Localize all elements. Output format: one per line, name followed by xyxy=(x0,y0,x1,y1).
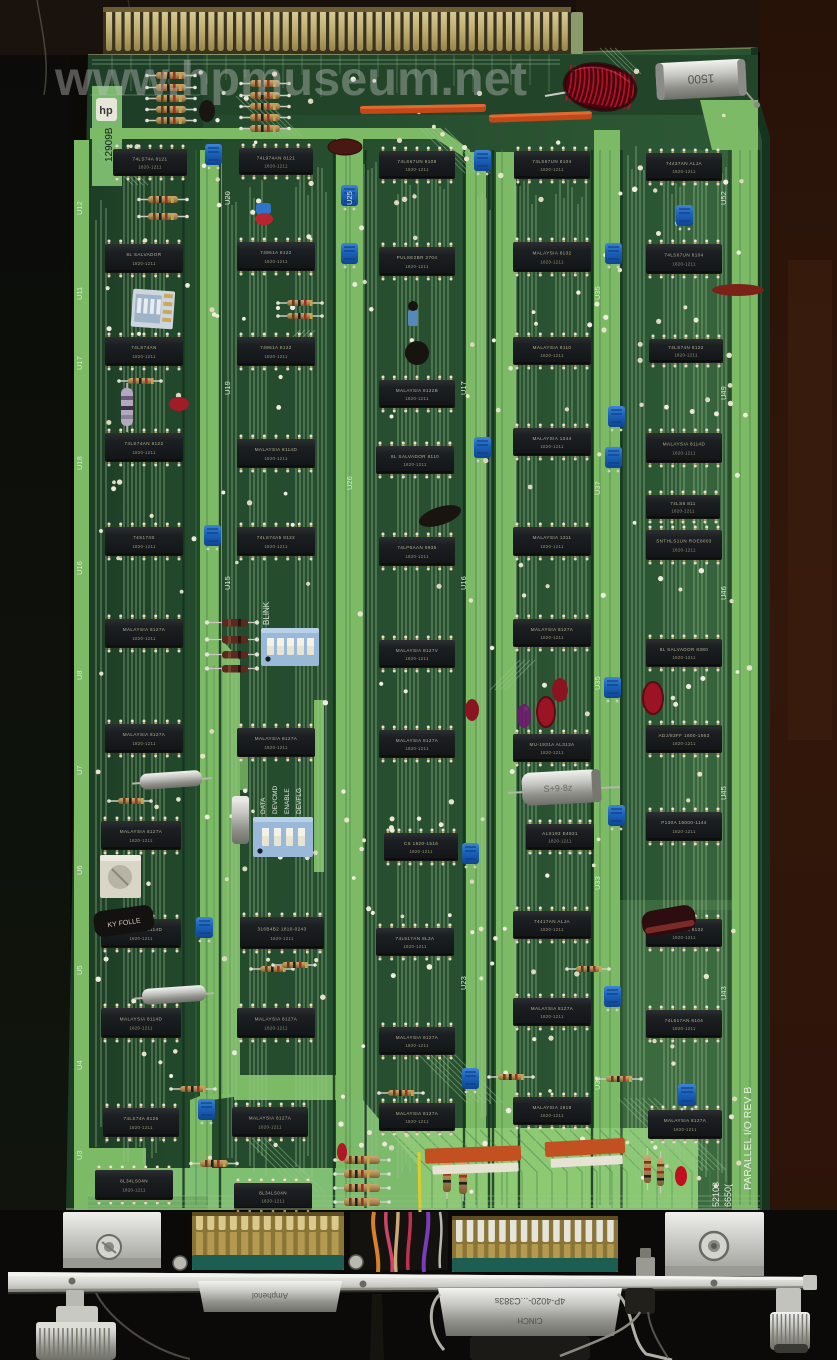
svg-text:MALAYSIA 8127A: MALAYSIA 8127A xyxy=(123,732,166,737)
svg-text:74LS74N 8122: 74LS74N 8122 xyxy=(668,345,703,350)
svg-text:1820-1211: 1820-1211 xyxy=(132,741,156,746)
svg-text:1820-1211: 1820-1211 xyxy=(672,935,696,940)
svg-text:1820-1211: 1820-1211 xyxy=(264,544,288,549)
svg-text:1820-1211: 1820-1211 xyxy=(264,1026,288,1031)
svg-text:U17: U17 xyxy=(75,356,84,370)
svg-text:74LS6 811: 74LS6 811 xyxy=(670,501,696,506)
svg-text:1820-1211: 1820-1211 xyxy=(540,167,564,172)
svg-text:U20: U20 xyxy=(223,191,232,205)
svg-text:1820-1211: 1820-1211 xyxy=(270,936,294,941)
svg-text:U5: U5 xyxy=(75,965,84,975)
svg-text:1820-1211: 1820-1211 xyxy=(672,262,696,267)
svg-text:MALAYSIA 8127V: MALAYSIA 8127V xyxy=(396,648,439,653)
svg-text:1820-1211: 1820-1211 xyxy=(672,655,696,660)
svg-text:1820-1211: 1820-1211 xyxy=(540,353,564,358)
svg-text:1820-1211: 1820-1211 xyxy=(258,1125,282,1130)
svg-text:MALAYSIA 8127A: MALAYSIA 8127A xyxy=(531,627,574,632)
svg-text:1820-1211: 1820-1211 xyxy=(672,1026,696,1031)
svg-text:MALAYSIA 8127A: MALAYSIA 8127A xyxy=(120,829,163,834)
svg-text:1820-1211: 1820-1211 xyxy=(261,1198,285,1203)
svg-text:ADJ/83FF 1800-1863: ADJ/83FF 1800-1863 xyxy=(658,733,709,738)
svg-text:1820-1211: 1820-1211 xyxy=(405,1119,429,1124)
svg-text:1820-1211: 1820-1211 xyxy=(409,849,433,854)
svg-text:74L974AN 8121: 74L974AN 8121 xyxy=(257,155,295,160)
svg-text:CS 1820-1516: CS 1820-1516 xyxy=(404,841,438,846)
svg-text:74LP6AAN 8935: 74LP6AAN 8935 xyxy=(397,545,436,550)
svg-text:8L SALVADOR 8380: 8L SALVADOR 8380 xyxy=(660,647,708,652)
svg-text:1820-1211: 1820-1211 xyxy=(405,264,429,269)
svg-text:1820-1211: 1820-1211 xyxy=(405,554,429,559)
svg-text:MALAYSIA 8127A: MALAYSIA 8127A xyxy=(249,1116,292,1121)
svg-text:SNTHLS1UN ROE8003: SNTHLS1UN ROE8003 xyxy=(656,539,712,544)
svg-text:MALAYSIA 8110: MALAYSIA 8110 xyxy=(533,345,572,350)
svg-text:MALAYSIA 8127A: MALAYSIA 8127A xyxy=(531,1006,574,1011)
svg-text:PARALLEL I/O REV B: PARALLEL I/O REV B xyxy=(742,1087,754,1190)
svg-text:8L SALVADOR: 8L SALVADOR xyxy=(127,252,162,257)
svg-text:MALAYSIA 8122B: MALAYSIA 8122B xyxy=(396,388,439,393)
svg-text:MALAYSIA 8127A: MALAYSIA 8127A xyxy=(396,738,439,743)
svg-text:MALAYSIA 8114D: MALAYSIA 8114D xyxy=(255,447,298,452)
svg-text:74LS74A 8121: 74LS74A 8121 xyxy=(133,156,168,161)
svg-text:MALAYSIA 8114D: MALAYSIA 8114D xyxy=(120,1017,163,1022)
svg-text:1820-1211: 1820-1211 xyxy=(672,548,696,553)
svg-text:1820-1211: 1820-1211 xyxy=(548,839,572,844)
svg-text:U37: U37 xyxy=(593,481,602,495)
svg-text:U15: U15 xyxy=(223,576,232,590)
svg-text:1820-1211: 1820-1211 xyxy=(403,944,427,949)
svg-text:316B4B2 1810-0243: 316B4B2 1810-0243 xyxy=(258,926,307,931)
svg-text:1820-1211: 1820-1211 xyxy=(132,544,156,549)
svg-text:1820-1211: 1820-1211 xyxy=(405,167,429,172)
svg-text:MALAYSIA 8127A: MALAYSIA 8127A xyxy=(255,1017,298,1022)
svg-text:U35: U35 xyxy=(593,676,602,690)
svg-text:DEVCMD: DEVCMD xyxy=(272,786,279,814)
svg-text:1820-1211: 1820-1211 xyxy=(540,927,564,932)
svg-text:U11: U11 xyxy=(75,287,84,300)
svg-text:U23: U23 xyxy=(459,976,468,990)
svg-text:1820-1211: 1820-1211 xyxy=(671,508,695,513)
svg-text:74L517AN 8L3A: 74L517AN 8L3A xyxy=(396,936,435,941)
svg-text:U25: U25 xyxy=(345,191,354,205)
svg-text:1820-1211: 1820-1211 xyxy=(264,354,288,359)
svg-text:74LS74AN 8122: 74LS74AN 8122 xyxy=(125,441,164,446)
svg-text:MALAYSIA 8127A: MALAYSIA 8127A xyxy=(396,1035,439,1040)
svg-text:DATA: DATA xyxy=(260,797,267,814)
svg-text:U12: U12 xyxy=(75,201,84,215)
svg-text:CINCH: CINCH xyxy=(517,1316,543,1325)
svg-text:ALS193 E4821: ALS193 E4821 xyxy=(542,831,578,836)
svg-text:4P-4020-...C383s: 4P-4020-...C383s xyxy=(494,1296,565,1306)
svg-text:MALAYSIA 8127A: MALAYSIA 8127A xyxy=(664,1118,707,1123)
svg-text:Amphenol: Amphenol xyxy=(252,1291,288,1300)
svg-text:U3: U3 xyxy=(75,1150,84,1160)
svg-text:1820-1211: 1820-1211 xyxy=(540,544,564,549)
svg-text:U4: U4 xyxy=(75,1060,84,1070)
svg-text:1820-1211: 1820-1211 xyxy=(674,352,698,357)
svg-text:U18: U18 xyxy=(75,456,84,470)
svg-text:74961A 8122: 74961A 8122 xyxy=(260,345,292,350)
svg-text:1820-1211: 1820-1211 xyxy=(540,260,564,265)
svg-text:U33: U33 xyxy=(593,876,602,890)
svg-text:PULSE2BR 2704: PULSE2BR 2704 xyxy=(397,255,438,260)
svg-text:U17: U17 xyxy=(459,381,468,395)
svg-text:1820-1211: 1820-1211 xyxy=(129,936,153,941)
svg-text:1820-1211: 1820-1211 xyxy=(132,354,156,359)
svg-text:U6: U6 xyxy=(75,865,84,875)
svg-text:U35: U35 xyxy=(593,286,602,300)
svg-text:1820-1211: 1820-1211 xyxy=(264,745,288,750)
svg-text:1820-1211: 1820-1211 xyxy=(129,838,153,843)
svg-text:MALAYSIA 8127A: MALAYSIA 8127A xyxy=(255,736,298,741)
svg-text:8L34LS04N: 8L34LS04N xyxy=(120,1179,148,1184)
svg-text:1820-1211: 1820-1211 xyxy=(672,829,696,834)
svg-text:52103: 52103 xyxy=(711,1182,721,1207)
svg-text:6650(: 6650( xyxy=(723,1184,733,1207)
svg-text:1820-1211: 1820-1211 xyxy=(540,750,564,755)
svg-text:MALAYSIA 1344: MALAYSIA 1344 xyxy=(532,436,571,441)
svg-text:1820-1211: 1820-1211 xyxy=(540,1014,564,1019)
svg-text:1820-1211: 1820-1211 xyxy=(673,1127,697,1132)
svg-text:1820-1211: 1820-1211 xyxy=(672,169,696,174)
svg-text:1820-1211: 1820-1211 xyxy=(264,456,288,461)
svg-text:1820-1211: 1820-1211 xyxy=(132,450,156,455)
svg-text:1820-1211: 1820-1211 xyxy=(129,1026,153,1031)
svg-text:U52: U52 xyxy=(719,191,728,205)
svg-text:1820-1211: 1820-1211 xyxy=(672,741,696,746)
svg-text:1820-1211: 1820-1211 xyxy=(405,1043,429,1048)
svg-text:U7: U7 xyxy=(75,765,84,775)
svg-text:1820-1211: 1820-1211 xyxy=(405,396,429,401)
svg-text:MALAYSIA 8114D: MALAYSIA 8114D xyxy=(663,442,706,447)
svg-text:S+9·8z: S+9·8z xyxy=(543,782,573,794)
svg-text:12909B: 12909B xyxy=(104,127,115,162)
svg-text:MALAYSIA 8127A: MALAYSIA 8127A xyxy=(123,627,166,632)
svg-text:1820-1211: 1820-1211 xyxy=(122,1188,146,1193)
svg-text:U45: U45 xyxy=(719,786,728,800)
svg-text:1500: 1500 xyxy=(687,71,715,86)
svg-text:U46: U46 xyxy=(719,586,728,600)
svg-text:1820-1211: 1820-1211 xyxy=(405,746,429,751)
svg-text:MALAYSIA 8127A: MALAYSIA 8127A xyxy=(396,1111,439,1116)
svg-text:74417AN ALJA: 74417AN ALJA xyxy=(534,919,570,924)
svg-text:74S174S: 74S174S xyxy=(133,535,155,540)
svg-text:U19: U19 xyxy=(223,381,232,395)
svg-text:MALAYSIA 1918: MALAYSIA 1918 xyxy=(532,1105,571,1110)
svg-text:74437AN ALJA: 74437AN ALJA xyxy=(666,161,702,166)
svg-text:1820-1211: 1820-1211 xyxy=(540,635,564,640)
svg-text:DEVFLG: DEVFLG xyxy=(296,788,303,814)
svg-text:1820-1211: 1820-1211 xyxy=(540,1113,564,1118)
svg-text:1820-1211: 1820-1211 xyxy=(264,259,288,264)
svg-text:1820-1211: 1820-1211 xyxy=(540,444,564,449)
svg-text:1820-1211: 1820-1211 xyxy=(264,163,288,168)
svg-text:1820-1211: 1820-1211 xyxy=(672,451,696,456)
svg-text:MALAYSIA 1311: MALAYSIA 1311 xyxy=(533,535,572,540)
svg-text:1820-1211: 1820-1211 xyxy=(132,261,156,266)
svg-text:74LS74A 8126: 74LS74A 8126 xyxy=(124,1116,159,1121)
svg-text:U32: U32 xyxy=(593,1076,602,1090)
svg-text:hp: hp xyxy=(99,105,113,117)
svg-text:U49: U49 xyxy=(719,386,728,400)
svg-text:MU-1931A AL313A: MU-1931A AL313A xyxy=(529,742,575,747)
svg-text:74L517AN 8104: 74L517AN 8104 xyxy=(665,1018,703,1023)
svg-text:BLINK: BLINK xyxy=(262,601,271,625)
svg-text:1820-1211: 1820-1211 xyxy=(405,656,429,661)
svg-text:1820-1211: 1820-1211 xyxy=(129,1125,153,1130)
svg-text:ENABLE: ENABLE xyxy=(284,788,291,814)
svg-text:74LS67UN 8108: 74LS67UN 8108 xyxy=(397,159,436,164)
svg-text:U8: U8 xyxy=(75,670,84,680)
svg-text:74LS74AN: 74LS74AN xyxy=(131,345,156,350)
svg-text:U26: U26 xyxy=(345,476,354,490)
svg-text:www.hpmuseum.net: www.hpmuseum.net xyxy=(54,53,527,106)
svg-text:8L34LS04N: 8L34LS04N xyxy=(259,1190,287,1195)
svg-text:74LS74A5 8122: 74LS74A5 8122 xyxy=(257,535,295,540)
svg-text:U16: U16 xyxy=(459,576,468,590)
svg-text:MALAYSIA 8132: MALAYSIA 8132 xyxy=(532,251,571,256)
svg-text:74961A 8122: 74961A 8122 xyxy=(260,250,292,255)
svg-text:1820-1211: 1820-1211 xyxy=(403,462,427,467)
svg-text:U43: U43 xyxy=(719,986,728,1000)
svg-text:8L SALVADOR 8110: 8L SALVADOR 8110 xyxy=(391,454,439,459)
svg-text:1820-1211: 1820-1211 xyxy=(138,164,162,169)
svg-text:U16: U16 xyxy=(75,561,84,575)
svg-text:1820-1211: 1820-1211 xyxy=(132,636,156,641)
svg-text:P130A 16000-1144: P130A 16000-1144 xyxy=(661,820,706,825)
svg-text:74LS67UN 8104: 74LS67UN 8104 xyxy=(664,253,703,258)
svg-text:74LS67UN 8104: 74LS67UN 8104 xyxy=(532,159,571,164)
